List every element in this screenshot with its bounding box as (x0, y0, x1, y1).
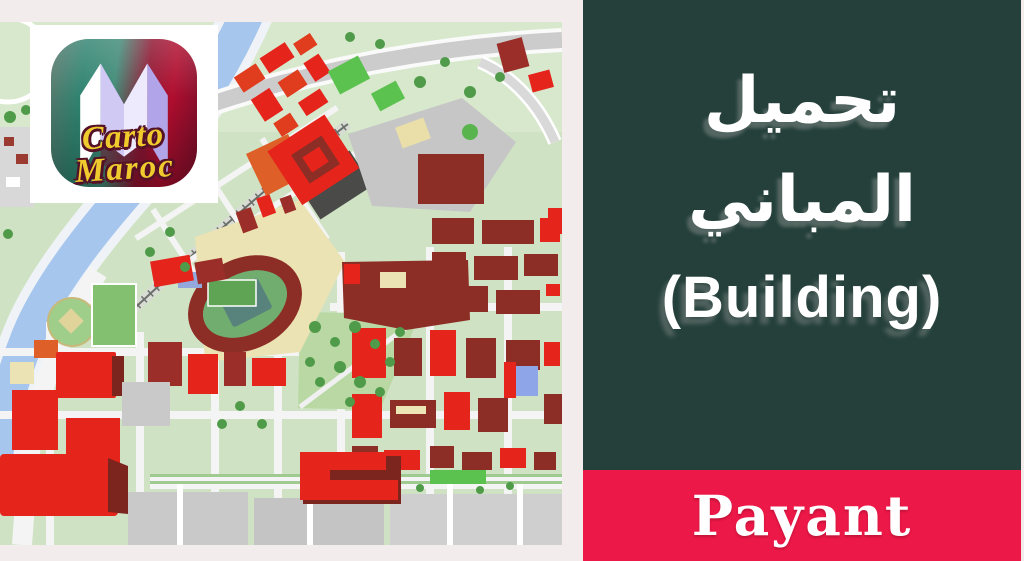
logo-wordmark: Carto Maroc (28, 115, 220, 191)
logo-card: Carto Maroc (30, 25, 218, 203)
payant-banner: Payant (583, 470, 1021, 561)
arabic-title: تحميل المباني (688, 52, 916, 250)
arabic-title-line2: المباني (688, 151, 916, 250)
payant-label: Payant (692, 483, 913, 548)
title-panel: تحميل المباني (Building) (583, 0, 1021, 470)
thumbnail-root: { "frame": { "background": "#F3ECEC" }, … (0, 0, 1024, 561)
arabic-title-line1: تحميل (688, 52, 916, 151)
map-maroon-blob (342, 260, 470, 330)
city-map-panel: Carto Maroc (0, 22, 562, 545)
building-subtitle: (Building) (662, 264, 943, 331)
